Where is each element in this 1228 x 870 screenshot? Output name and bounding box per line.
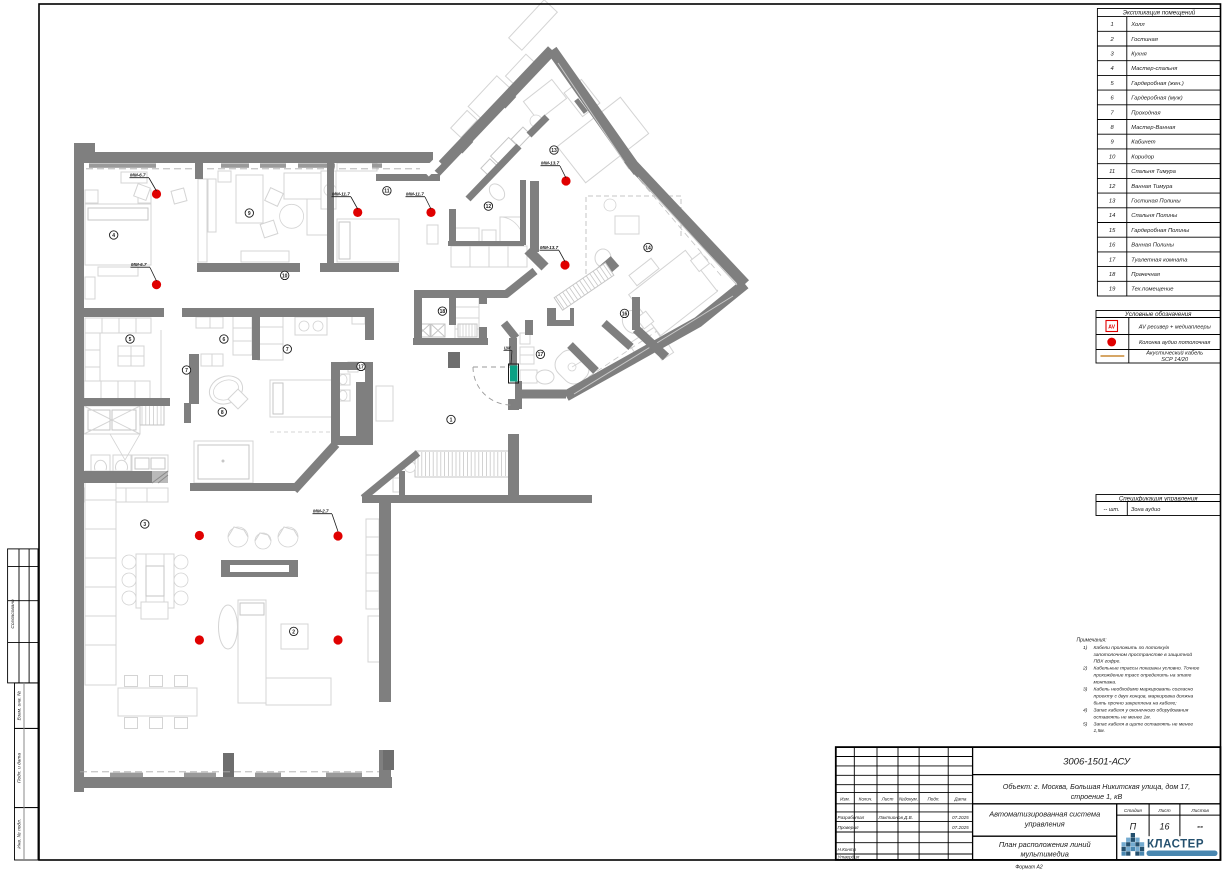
svg-text:Согласовано: Согласовано: [10, 599, 16, 629]
svg-text:КЛАСТЕР: КЛАСТЕР: [1147, 839, 1204, 851]
svg-text:15: 15: [1109, 228, 1116, 234]
svg-text:Кабинет: Кабинет: [1131, 140, 1155, 146]
svg-text:Экспликация помещений: Экспликация помещений: [1123, 10, 1196, 17]
svg-text:MM-11.7: MM-11.7: [406, 192, 424, 197]
svg-text:строение 1, кВ: строение 1, кВ: [1071, 792, 1123, 801]
svg-text:AV: AV: [1108, 325, 1115, 331]
svg-text:1: 1: [1110, 22, 1113, 28]
svg-text:Проверил: Проверил: [838, 825, 859, 830]
svg-text:Спальня Полины: Спальня Полины: [1131, 213, 1178, 219]
svg-text:Утвердил: Утвердил: [838, 855, 860, 860]
svg-text:3: 3: [143, 522, 146, 528]
svg-text:07.2025: 07.2025: [952, 815, 969, 820]
svg-text:Мастер-спальня: Мастер-спальня: [1131, 66, 1177, 72]
svg-text:1): 1): [1083, 645, 1088, 651]
svg-text:18: 18: [1109, 272, 1116, 278]
svg-text:Тех.помещение: Тех.помещение: [1131, 287, 1174, 293]
svg-text:проекту с двух концов, маркиро: проекту с двух концов, маркировка должна: [1094, 694, 1194, 700]
svg-text:6: 6: [223, 337, 226, 343]
svg-text:оставлять не менее 1м.: оставлять не менее 1м.: [1094, 714, 1151, 720]
svg-text:8: 8: [221, 410, 224, 416]
svg-text:9: 9: [248, 211, 251, 217]
svg-text:Кабели проложить по потолку/в: Кабели проложить по потолку/в: [1094, 645, 1170, 651]
svg-text:Лактионов Д.В.: Лактионов Д.В.: [878, 815, 913, 820]
svg-text:Прачечная: Прачечная: [1131, 272, 1160, 278]
svg-text:Подп. и дата: Подп. и дата: [17, 753, 23, 783]
svg-text:Спецификация управления: Спецификация управления: [1119, 495, 1198, 502]
svg-text:Гостиная Полины: Гостиная Полины: [1131, 199, 1181, 205]
svg-text:Гардеробная (муж): Гардеробная (муж): [1131, 96, 1182, 102]
svg-text:1,5м.: 1,5м.: [1094, 728, 1106, 734]
svg-text:монтажа.: монтажа.: [1094, 681, 1117, 686]
svg-text:Условные обозначения: Условные обозначения: [1124, 311, 1192, 318]
svg-text:4: 4: [112, 233, 115, 239]
svg-text:2: 2: [292, 629, 295, 635]
svg-text:Изм.: Изм.: [840, 797, 850, 802]
svg-text:Ванная Полины: Ванная Полины: [1131, 243, 1174, 249]
svg-text:3006-1501-АСУ: 3006-1501-АСУ: [1063, 757, 1131, 768]
svg-text:16: 16: [622, 311, 628, 317]
svg-text:Холл: Холл: [1130, 22, 1145, 28]
svg-text:Автоматизированная система: Автоматизированная система: [988, 810, 1100, 819]
svg-text:2): 2): [1082, 666, 1088, 672]
svg-text:Листов: Листов: [1190, 808, 1209, 814]
svg-text:Мастер-Ванная: Мастер-Ванная: [1131, 125, 1175, 131]
svg-text:-- шт.: -- шт.: [1103, 507, 1119, 513]
svg-text:7: 7: [185, 368, 188, 374]
svg-text:Ванная Тимура: Ванная Тимура: [1131, 184, 1173, 190]
svg-text:Инв. № подл.: Инв. № подл.: [17, 819, 23, 849]
svg-text:Гостиная: Гостиная: [1131, 37, 1158, 43]
svg-text:Спальня Тимура: Спальня Тимура: [1131, 169, 1176, 175]
svg-text:17: 17: [1109, 257, 1116, 263]
svg-text:Лист: Лист: [1157, 808, 1170, 814]
svg-text:MM-13.7: MM-13.7: [541, 161, 560, 166]
svg-text:№докум.: №докум.: [899, 797, 918, 802]
svg-text:Формат А2: Формат А2: [1015, 864, 1043, 870]
svg-text:10: 10: [282, 273, 288, 279]
svg-text:--: --: [1197, 822, 1203, 832]
svg-text:Колонка аудио потолочная: Колонка аудио потолочная: [1139, 340, 1210, 346]
svg-text:Зона аудио: Зона аудио: [1131, 507, 1160, 513]
svg-text:Туалетная комната: Туалетная комната: [1131, 257, 1188, 263]
svg-text:прохождение трасс определить н: прохождение трасс определить на этапе: [1094, 673, 1192, 679]
svg-text:16: 16: [1159, 822, 1169, 832]
svg-text:Кабельные трассы показаны усло: Кабельные трассы показаны условно. Точно…: [1094, 666, 1200, 672]
svg-text:запотолочном пространстве в за: запотолочном пространстве в защитной: [1093, 651, 1193, 658]
svg-text:4): 4): [1083, 707, 1088, 713]
svg-text:Объект: г. Москва, Большая Ник: Объект: г. Москва, Большая Никитская ули…: [1003, 782, 1191, 791]
svg-text:П: П: [1130, 822, 1137, 832]
svg-text:11: 11: [384, 189, 390, 195]
svg-text:ШК: ШК: [504, 346, 511, 351]
svg-text:07.2025: 07.2025: [952, 825, 969, 830]
svg-text:12: 12: [1109, 184, 1116, 190]
svg-text:MM-11.7: MM-11.7: [332, 192, 350, 197]
svg-text:MM-6.7: MM-6.7: [130, 173, 146, 178]
svg-text:управления: управления: [1024, 820, 1065, 829]
svg-text:Акустический кабель: Акустический кабель: [1145, 350, 1203, 357]
svg-text:Кабель необходимо маркировать: Кабель необходимо маркировать согласно: [1094, 687, 1194, 693]
svg-text:12: 12: [486, 204, 492, 210]
svg-text:Гардеробная Полины: Гардеробная Полины: [1131, 228, 1190, 234]
svg-text:11: 11: [1109, 169, 1115, 175]
svg-text:мультимедиа: мультимедиа: [1021, 850, 1069, 859]
svg-text:13: 13: [551, 148, 557, 154]
svg-text:MM-13.7: MM-13.7: [540, 245, 559, 250]
svg-text:быть прочно закреплена на кабе: быть прочно закреплена на кабеле;: [1094, 700, 1178, 706]
svg-text:Стадия: Стадия: [1124, 808, 1142, 814]
svg-text:7: 7: [286, 347, 289, 353]
svg-text:16: 16: [1109, 243, 1116, 249]
svg-text:Проходная: Проходная: [1131, 110, 1160, 116]
svg-text:План расположения линий: План расположения линий: [999, 840, 1091, 849]
svg-text:Взам. инв. №: Взам. инв. №: [17, 691, 23, 721]
svg-text:Дата: Дата: [953, 797, 967, 802]
svg-text:4: 4: [1110, 66, 1113, 72]
svg-text:14: 14: [645, 245, 651, 251]
svg-text:Колич.: Колич.: [859, 797, 873, 802]
svg-text:Гардеробная (жен.): Гардеробная (жен.): [1131, 81, 1184, 87]
svg-text:Коридор: Коридор: [1131, 154, 1155, 160]
svg-text:Н.Контр: Н.Контр: [838, 847, 857, 852]
svg-text:Кухня: Кухня: [1131, 52, 1146, 58]
svg-text:Примечания:: Примечания:: [1077, 638, 1108, 644]
svg-text:MM-2.7: MM-2.7: [313, 509, 329, 514]
svg-text:1: 1: [450, 417, 453, 423]
svg-text:Подп.: Подп.: [927, 797, 939, 802]
svg-text:SCP 14/20: SCP 14/20: [1161, 357, 1189, 363]
svg-text:10: 10: [1109, 154, 1116, 160]
svg-text:Запас кабеля у оконечного обор: Запас кабеля у оконечного оборудования: [1094, 707, 1189, 713]
svg-text:17: 17: [358, 364, 364, 370]
svg-text:19: 19: [1109, 287, 1116, 293]
svg-text:18: 18: [440, 309, 446, 315]
svg-text:17: 17: [538, 352, 544, 358]
svg-text:3): 3): [1083, 687, 1088, 693]
svg-text:Лист: Лист: [881, 797, 894, 802]
svg-text:5: 5: [129, 337, 132, 343]
svg-text:5): 5): [1083, 721, 1088, 727]
svg-text:MM-6.7: MM-6.7: [131, 262, 147, 267]
svg-text:Разработал: Разработал: [838, 815, 865, 820]
svg-text:AV ресивер + медиаплееры: AV ресивер + медиаплееры: [1138, 325, 1211, 331]
svg-text:14: 14: [1109, 213, 1115, 219]
svg-text:Запас кабеля в щите оставлять: Запас кабеля в щите оставлять не менее: [1094, 721, 1194, 727]
svg-text:13: 13: [1109, 199, 1116, 205]
svg-text:ПВХ гофре.: ПВХ гофре.: [1094, 659, 1121, 665]
